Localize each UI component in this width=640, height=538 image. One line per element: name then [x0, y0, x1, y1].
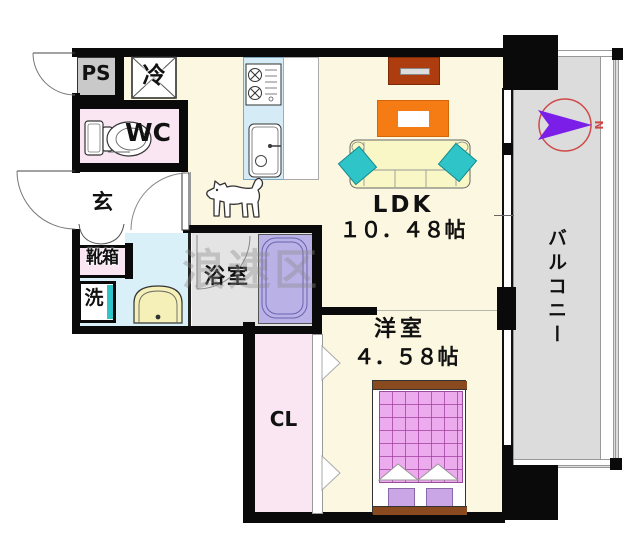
balcony-outer-line [615, 50, 616, 466]
bedroom-label: 洋室 [355, 318, 445, 341]
entrance-door-arc-icon [17, 171, 75, 229]
wall-left-upper [72, 93, 80, 173]
window-bedroom [502, 313, 513, 445]
bed-quilt [379, 391, 463, 483]
ldk-size-label: １０．４８帖 [325, 219, 480, 241]
wall-left-lower [72, 229, 80, 334]
wall-ps-right [115, 48, 124, 104]
wall-washroom-bottom [72, 326, 322, 334]
wall-bath-top [183, 225, 322, 233]
wall-wc-bottom [72, 163, 188, 172]
window-ldk [502, 88, 513, 287]
bed-headboard [373, 381, 467, 390]
bedroom-size-label: ４．５８帖 [330, 346, 482, 368]
ldk-bedroom-opening-line [377, 310, 497, 311]
pillar-window-small-1 [502, 143, 513, 155]
table-icon [377, 100, 449, 137]
wall-divider-stub [320, 307, 377, 315]
window-ldk-tick [494, 215, 514, 216]
pillar-window-small-2 [502, 445, 513, 466]
hallway [125, 172, 191, 234]
balcony-label: バルコニー [545, 218, 565, 358]
closet-label: CL [255, 409, 312, 430]
kitchen-worktop [283, 57, 319, 180]
ps-label: PS [77, 63, 115, 84]
table-center [398, 111, 429, 127]
pillar-balcony-top [612, 48, 623, 60]
balcony-railing [600, 52, 614, 466]
genkan-lower [80, 226, 125, 245]
pillar-mid [497, 287, 516, 330]
floorplan: N PS 冷 WC 玄 靴箱 洗 浴室 CL LDK １０．４８帖 洋室 ４．５… [0, 0, 640, 538]
tv-screen [400, 68, 430, 75]
pillar-balcony-bottom [610, 458, 622, 470]
shoebox-label: 靴箱 [73, 250, 131, 268]
pillar-bottom-right [502, 465, 558, 520]
wc-label: WC [118, 120, 178, 146]
laundry-label: 洗 [79, 289, 109, 309]
closet-door-strip [312, 334, 323, 514]
wall-closet-left [243, 322, 255, 518]
fridge-label: 冷 [132, 64, 176, 88]
bed-footboard [373, 506, 467, 515]
wall-wc-right [179, 100, 188, 172]
tv-board-icon [388, 57, 440, 85]
wall-top [72, 48, 505, 57]
genkan-label: 玄 [80, 191, 125, 213]
ps-door-arc-icon [33, 53, 75, 95]
pillar-top-right [503, 35, 558, 90]
kitchen-counter [243, 57, 285, 180]
wall-wc-top [80, 100, 188, 109]
bed-icon [372, 380, 466, 514]
watermark-text: 浪速区 [182, 236, 320, 298]
ldk-label: LDK [348, 193, 458, 217]
